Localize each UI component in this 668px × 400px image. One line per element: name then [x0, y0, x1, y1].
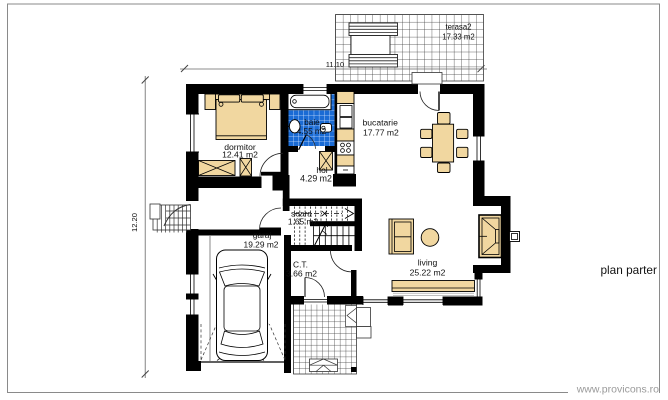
svg-text:plan parter: plan parter — [601, 263, 657, 277]
svg-text:bucatarie: bucatarie — [363, 118, 399, 128]
svg-text:3.66 m2: 3.66 m2 — [286, 269, 317, 279]
svg-text:garaj: garaj — [253, 230, 272, 240]
svg-text:1.65 m2: 1.65 m2 — [288, 217, 319, 227]
svg-text:baie: baie — [304, 118, 320, 127]
svg-text:12.41 m2: 12.41 m2 — [222, 150, 258, 160]
svg-text:19.29 m2: 19.29 m2 — [244, 240, 279, 250]
svg-text:17.77 m2: 17.77 m2 — [363, 128, 399, 138]
svg-text:12.20: 12.20 — [130, 213, 139, 232]
svg-text:4.55 m2: 4.55 m2 — [297, 127, 327, 136]
svg-text:living: living — [418, 258, 438, 268]
svg-text:17.33 m2: 17.33 m2 — [442, 33, 475, 42]
svg-text:terasa2: terasa2 — [445, 23, 471, 32]
svg-text:25.22 m2: 25.22 m2 — [410, 268, 446, 278]
svg-text:4.29 m2: 4.29 m2 — [300, 174, 332, 184]
svg-text:www.provicons.ro: www.provicons.ro — [576, 384, 659, 396]
svg-text:11.10: 11.10 — [326, 60, 344, 69]
